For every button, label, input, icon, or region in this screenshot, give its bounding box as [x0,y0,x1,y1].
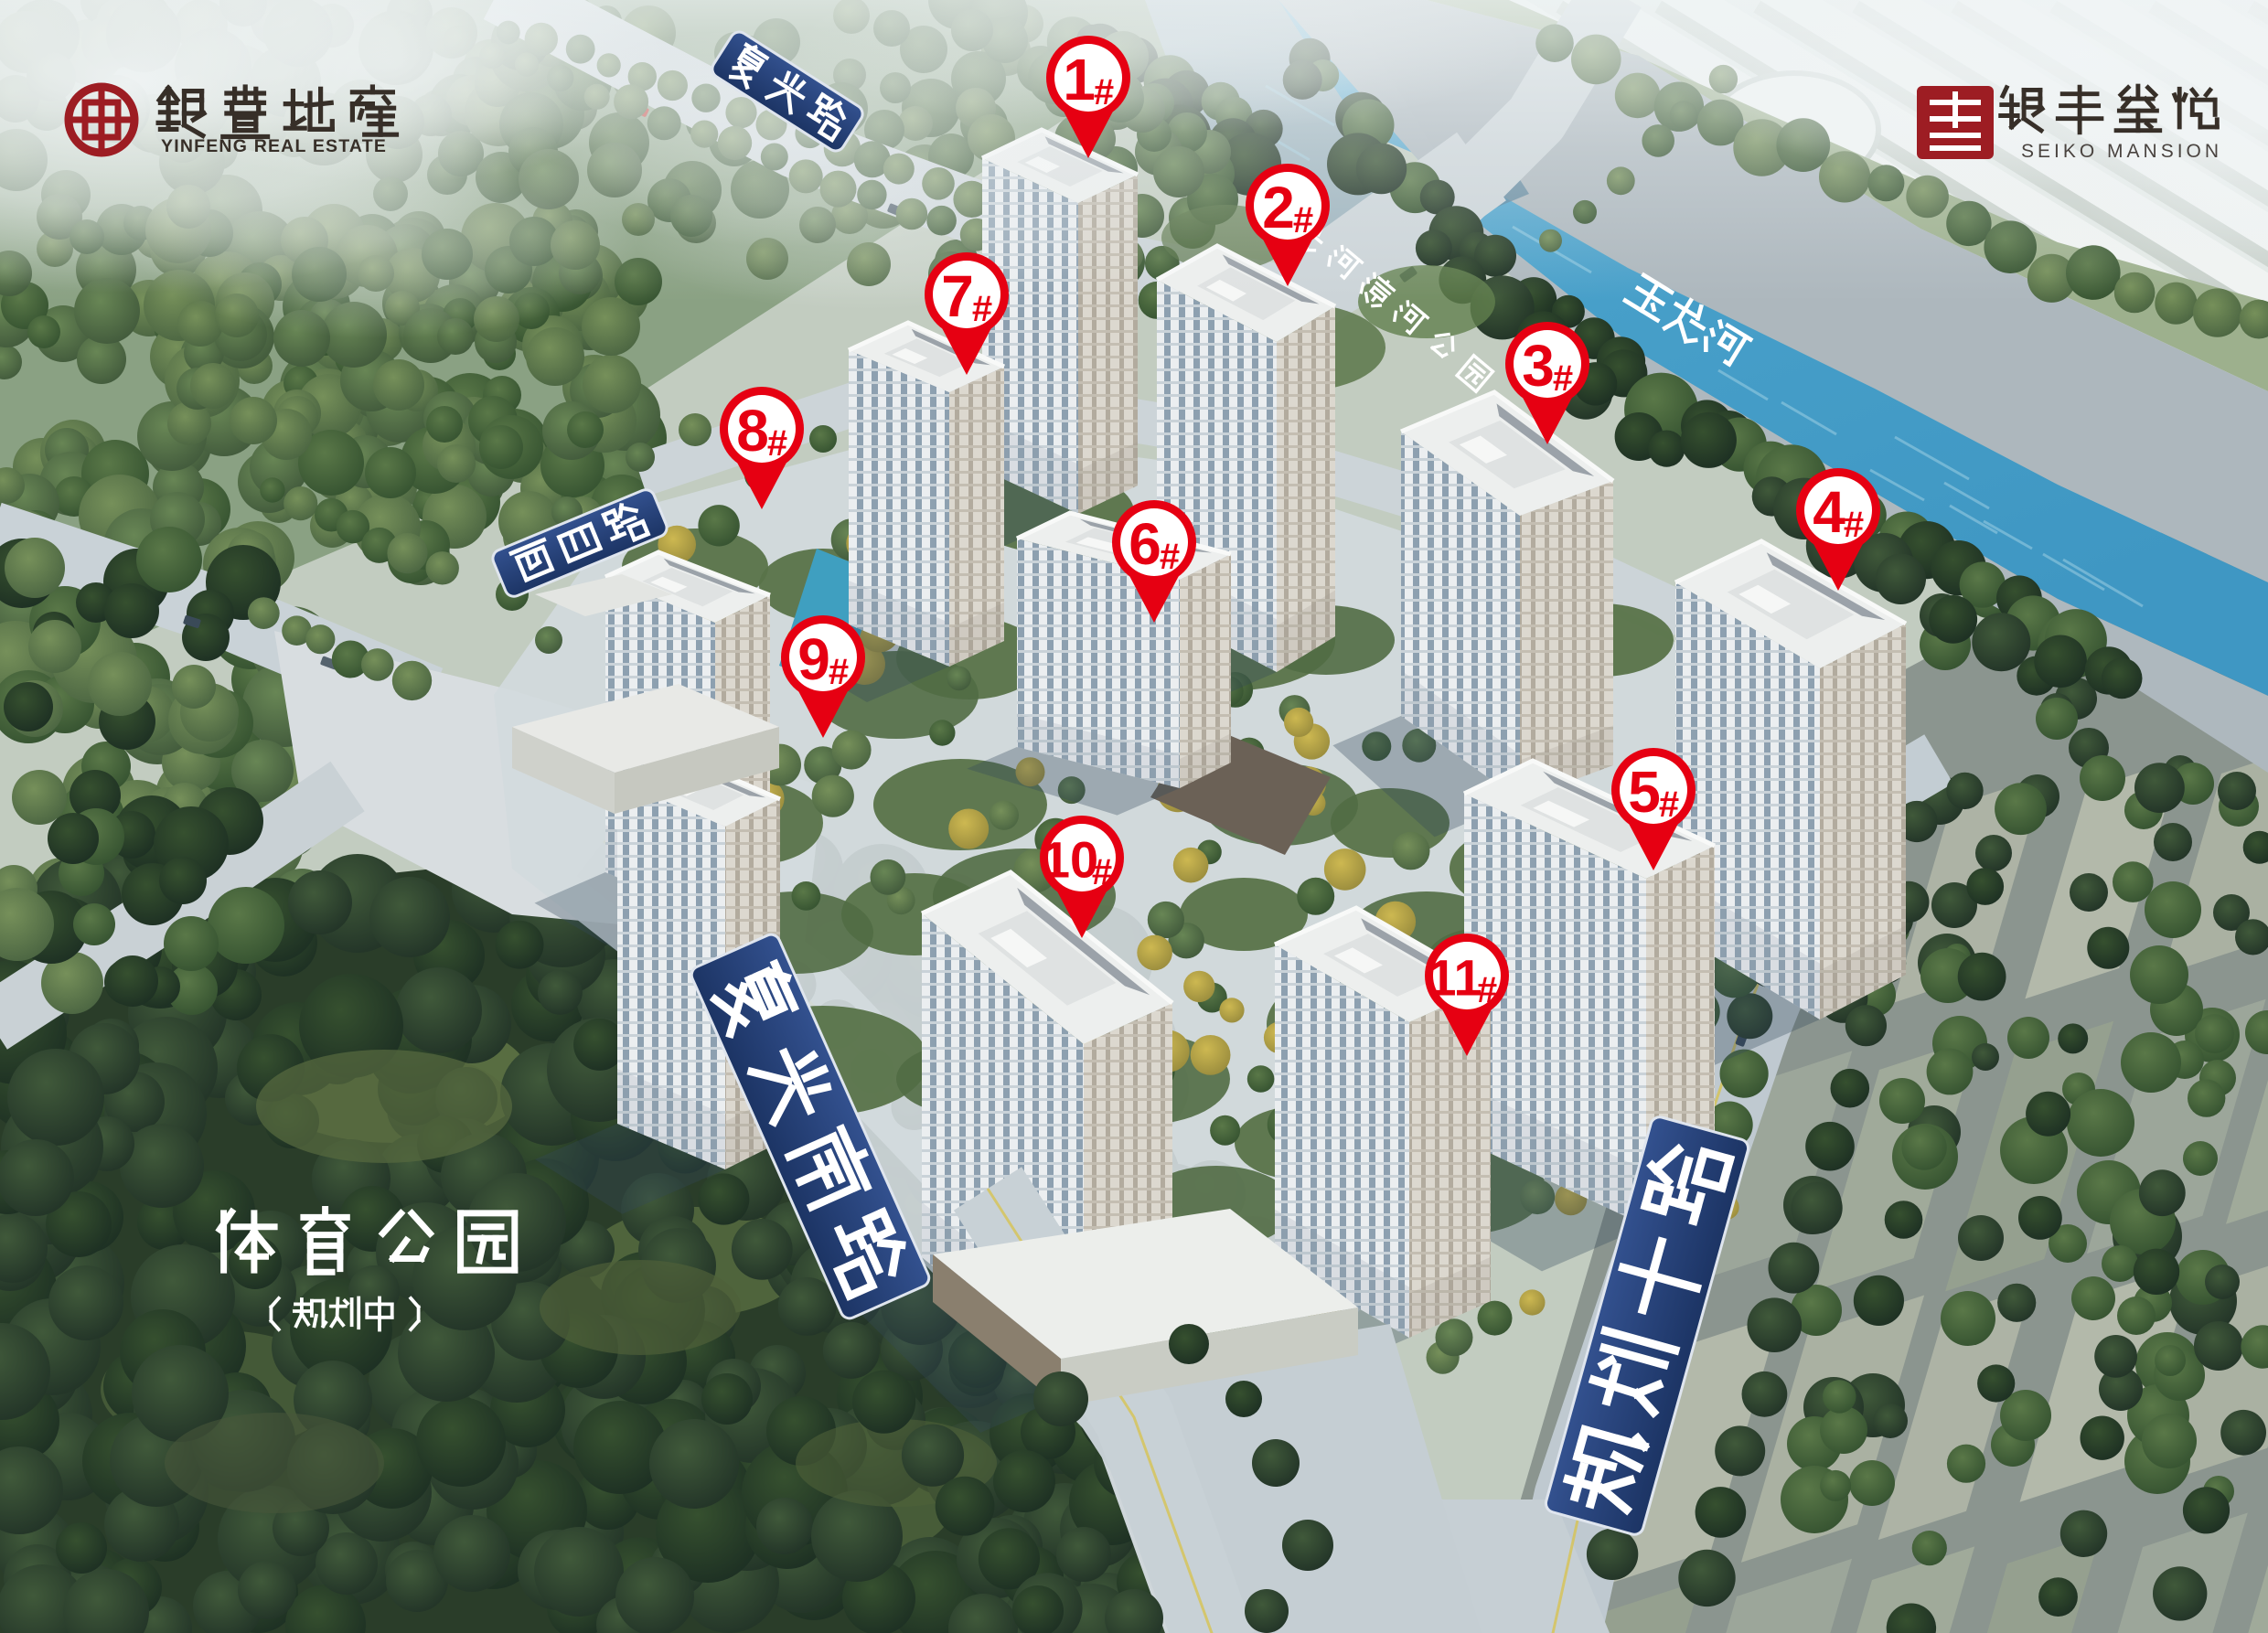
svg-text:7: 7 [941,263,974,329]
svg-text:#: # [829,652,849,692]
svg-text:4: 4 [1813,479,1845,545]
svg-text:1: 1 [1063,47,1096,112]
svg-text:#: # [1477,970,1497,1010]
svg-text:YINFENG REAL ESTATE: YINFENG REAL ESTATE [161,136,387,156]
svg-text:#: # [1659,784,1679,825]
svg-text:3: 3 [1522,333,1555,399]
svg-text:6: 6 [1129,511,1161,577]
svg-text:#: # [1553,358,1573,399]
svg-text:#: # [767,423,787,464]
svg-text:SEIKO MANSION: SEIKO MANSION [2021,141,2222,162]
svg-text:#: # [1094,72,1114,112]
svg-text:#: # [1092,852,1112,892]
svg-text:#: # [972,289,992,329]
svg-text:8: 8 [736,398,769,464]
svg-text:11: 11 [1428,949,1482,1007]
svg-text:9: 9 [797,626,830,692]
svg-text:#: # [1293,200,1313,240]
svg-text:#: # [1160,537,1180,577]
svg-text:10: 10 [1042,831,1098,889]
svg-text:2: 2 [1262,175,1295,240]
svg-text:5: 5 [1628,759,1661,825]
svg-text:#: # [1844,505,1864,545]
